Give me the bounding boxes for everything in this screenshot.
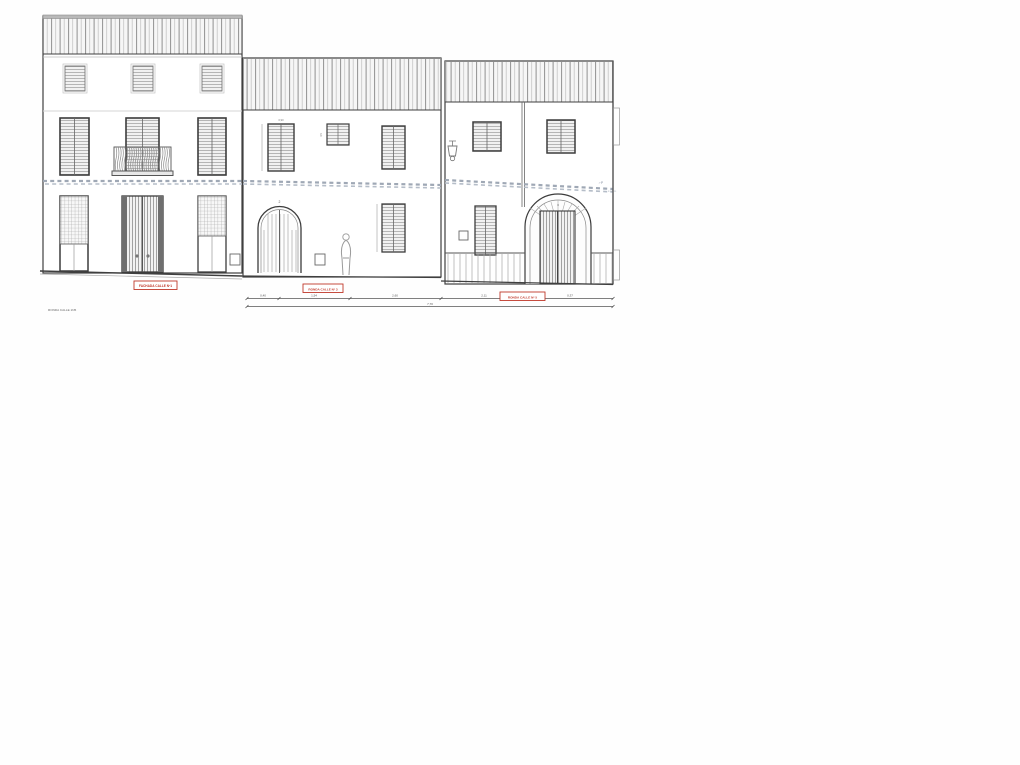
svg-text:0,90: 0,90	[278, 118, 284, 122]
svg-text:1,54: 1,54	[311, 294, 317, 298]
svg-text:7,70: 7,70	[427, 302, 433, 306]
svg-text:2,60: 2,60	[392, 294, 398, 298]
svg-text:0,40: 0,40	[260, 294, 266, 298]
svg-text:RONDA CALLE Nº 3: RONDA CALLE Nº 3	[308, 288, 337, 292]
svg-text:⌐P: ⌐P	[599, 181, 604, 185]
svg-text:L=4 m: L=4 m	[608, 189, 617, 193]
svg-text:RONDA CALLE Nº 5: RONDA CALLE Nº 5	[508, 296, 537, 300]
svg-text:2,11: 2,11	[481, 294, 487, 298]
svg-text:FACHADA CALLE Nº1: FACHADA CALLE Nº1	[139, 284, 172, 288]
svg-text:0,37: 0,37	[567, 294, 573, 298]
svg-text:2: 2	[279, 200, 281, 204]
svg-text:RONDA CALLE 1N5: RONDA CALLE 1N5	[48, 308, 76, 312]
